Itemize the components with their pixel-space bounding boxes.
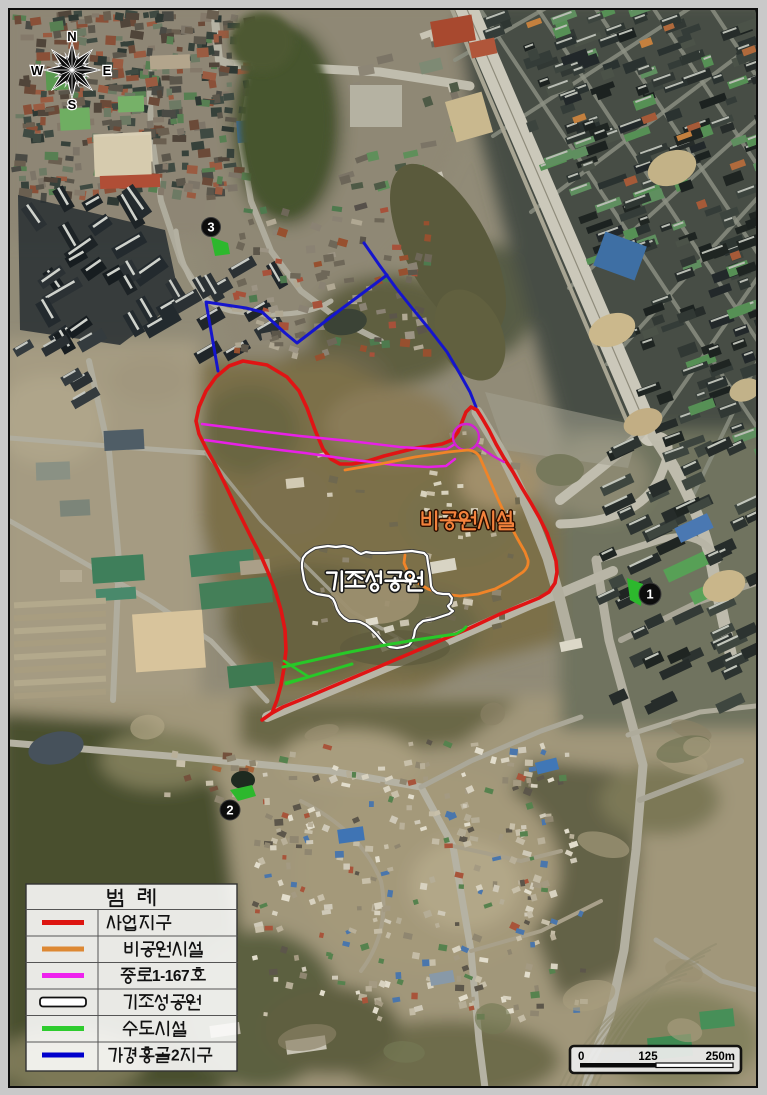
svg-text:2: 2 [171, 1048, 180, 1065]
svg-text:0: 0 [578, 1051, 584, 1063]
svg-text:3: 3 [207, 220, 214, 235]
svg-text:250m: 250m [706, 1051, 735, 1063]
svg-text:N: N [67, 29, 76, 44]
svg-text:W: W [31, 63, 44, 78]
svg-text:125: 125 [638, 1051, 658, 1063]
svg-text:S: S [68, 97, 77, 112]
svg-text:1-167: 1-167 [152, 968, 189, 985]
svg-text:E: E [103, 63, 112, 78]
svg-text:2: 2 [226, 803, 233, 818]
svg-text:1: 1 [646, 587, 653, 602]
